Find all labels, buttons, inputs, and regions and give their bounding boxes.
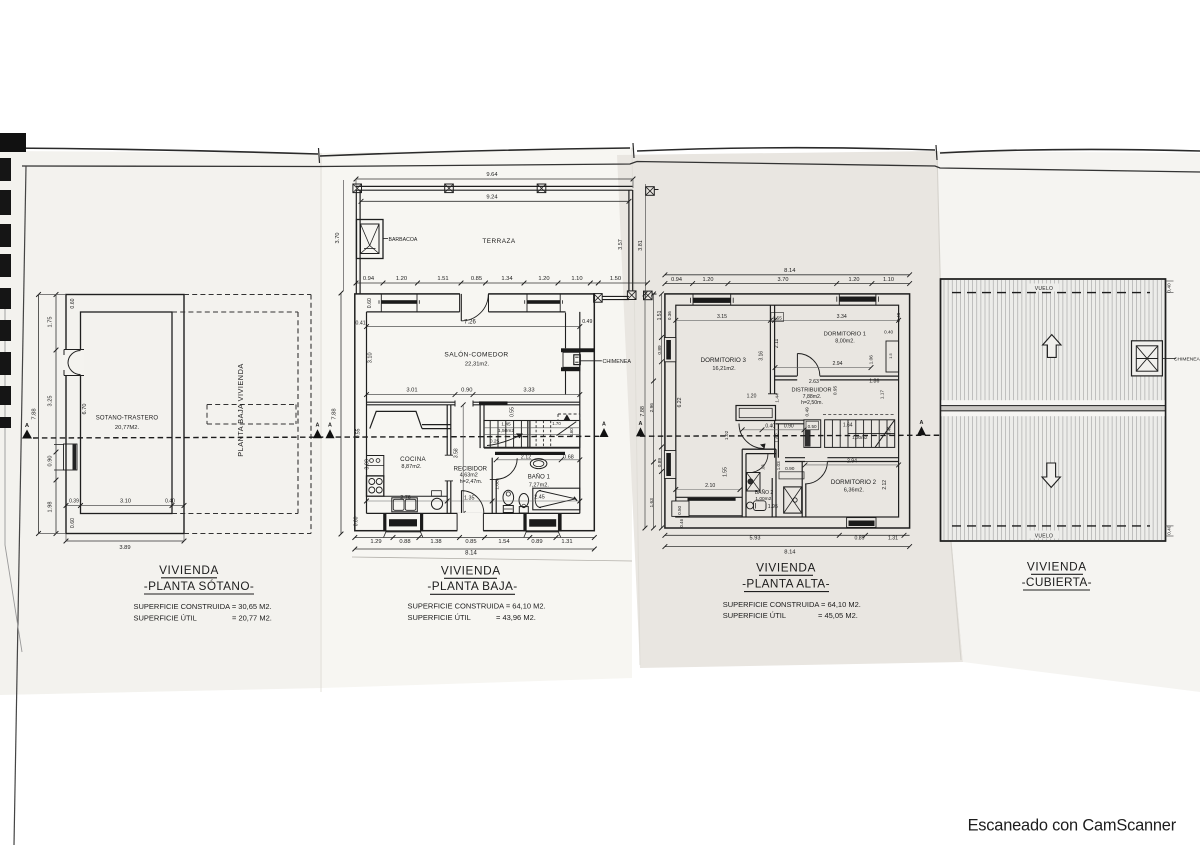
svg-text:0,55: 0,55 bbox=[773, 315, 782, 320]
svg-text:2.12: 2.12 bbox=[521, 454, 532, 460]
svg-text:1.10: 1.10 bbox=[883, 277, 894, 283]
svg-text:= 20,77 M2.: = 20,77 M2. bbox=[232, 614, 272, 623]
svg-text:1.45: 1.45 bbox=[501, 421, 511, 427]
svg-text:DORMITORIO 3: DORMITORIO 3 bbox=[701, 357, 747, 364]
svg-text:0.89: 0.89 bbox=[531, 539, 542, 545]
svg-text:0.50: 0.50 bbox=[677, 505, 682, 514]
svg-text:0.25: 0.25 bbox=[490, 439, 500, 445]
svg-text:SUPERFICIE CONSTRUIDA = 64,10: SUPERFICIE CONSTRUIDA = 64,10 M2. bbox=[408, 602, 546, 611]
svg-text:2.94: 2.94 bbox=[847, 458, 857, 464]
svg-text:0.85: 0.85 bbox=[471, 276, 482, 282]
svg-text:0.88: 0.88 bbox=[399, 539, 410, 545]
svg-text:8.14: 8.14 bbox=[784, 268, 796, 274]
svg-text:2.10: 2.10 bbox=[705, 483, 715, 489]
svg-text:A: A bbox=[602, 422, 606, 428]
svg-text:-PLANTA ALTA-: -PLANTA ALTA- bbox=[742, 577, 830, 591]
svg-text:0.40: 0.40 bbox=[884, 329, 893, 334]
svg-text:2.94: 2.94 bbox=[832, 361, 842, 367]
svg-text:TERRAZA: TERRAZA bbox=[482, 238, 516, 245]
svg-text:1.31: 1.31 bbox=[561, 539, 572, 545]
svg-text:1.51: 1.51 bbox=[437, 276, 448, 282]
svg-text:0.89: 0.89 bbox=[657, 458, 663, 468]
svg-text:A: A bbox=[920, 420, 924, 426]
svg-text:0.89: 0.89 bbox=[854, 535, 864, 541]
svg-text:6,36m2.: 6,36m2. bbox=[844, 488, 865, 494]
svg-text:-CUBIERTA-: -CUBIERTA- bbox=[1022, 575, 1092, 589]
svg-text:= 43,96 M2.: = 43,96 M2. bbox=[496, 613, 536, 622]
svg-text:0.41: 0.41 bbox=[356, 321, 366, 327]
svg-text:3.10: 3.10 bbox=[120, 499, 131, 505]
svg-text:SUPERFICIE ÚTIL: SUPERFICIE ÚTIL bbox=[723, 611, 786, 620]
svg-text:3.81: 3.81 bbox=[638, 240, 644, 251]
svg-text:0.60: 0.60 bbox=[367, 298, 373, 308]
svg-text:0.89: 0.89 bbox=[657, 345, 663, 355]
svg-text:SALÓN-COMEDOR: SALÓN-COMEDOR bbox=[444, 349, 508, 358]
svg-text:0.55: 0.55 bbox=[356, 428, 362, 438]
svg-text:0.60: 0.60 bbox=[354, 516, 360, 526]
svg-text:0.60: 0.60 bbox=[70, 518, 76, 528]
svg-text:0.55: 0.55 bbox=[510, 407, 516, 417]
svg-text:4,63m2: 4,63m2 bbox=[460, 472, 478, 478]
svg-text:2.45: 2.45 bbox=[534, 495, 545, 501]
svg-text:0.40: 0.40 bbox=[165, 499, 175, 505]
svg-text:1.06: 1.06 bbox=[869, 355, 875, 365]
svg-text:0.46: 0.46 bbox=[887, 426, 892, 435]
svg-text:0.68: 0.68 bbox=[563, 454, 574, 460]
svg-text:5.93: 5.93 bbox=[750, 535, 761, 541]
svg-text:1.55: 1.55 bbox=[723, 467, 729, 477]
svg-text:8.14: 8.14 bbox=[784, 549, 796, 555]
svg-text:1.38: 1.38 bbox=[430, 539, 441, 545]
svg-text:Escaneado con CamScanner: Escaneado con CamScanner bbox=[968, 817, 1177, 835]
svg-text:3.89: 3.89 bbox=[119, 545, 130, 551]
svg-text:1.5: 1.5 bbox=[888, 352, 893, 358]
svg-text:1,50m2: 1,50m2 bbox=[498, 428, 514, 434]
svg-text:CHIMENEA: CHIMENEA bbox=[1174, 357, 1200, 363]
svg-text:1.95: 1.95 bbox=[768, 504, 778, 510]
svg-text:-PLANTA BAJA-: -PLANTA BAJA- bbox=[427, 579, 517, 593]
svg-text:9.64: 9.64 bbox=[486, 172, 498, 178]
svg-text:0.94: 0.94 bbox=[671, 277, 682, 283]
svg-text:1.03: 1.03 bbox=[776, 461, 781, 470]
svg-text:VIVIENDA: VIVIENDA bbox=[441, 564, 501, 578]
svg-text:A: A bbox=[639, 421, 643, 427]
svg-text:PLANTA BAJA VIVIENDA: PLANTA BAJA VIVIENDA bbox=[236, 363, 245, 456]
svg-text:VUELO: VUELO bbox=[1035, 533, 1053, 539]
svg-text:RECIBIDOR: RECIBIDOR bbox=[454, 466, 488, 472]
svg-text:0,40: 0,40 bbox=[1166, 283, 1172, 293]
svg-text:1.20: 1.20 bbox=[703, 277, 714, 283]
svg-text:3.57: 3.57 bbox=[618, 239, 624, 250]
svg-text:1.31: 1.31 bbox=[888, 535, 898, 541]
svg-text:6.70: 6.70 bbox=[82, 404, 88, 415]
svg-text:3.01: 3.01 bbox=[406, 387, 417, 393]
svg-text:A: A bbox=[328, 423, 332, 429]
svg-text:SUPERFICIE ÚTIL: SUPERFICIE ÚTIL bbox=[408, 613, 471, 622]
svg-text:BARBACOA: BARBACOA bbox=[389, 237, 418, 243]
svg-text:7,27m2.: 7,27m2. bbox=[529, 482, 550, 488]
svg-text:0.90: 0.90 bbox=[784, 423, 794, 429]
svg-text:0.90: 0.90 bbox=[785, 466, 795, 472]
svg-text:1.63: 1.63 bbox=[649, 498, 655, 508]
svg-text:1.62: 1.62 bbox=[774, 433, 780, 443]
svg-text:6.22: 6.22 bbox=[677, 397, 683, 407]
svg-text:DORMITORIO 1: DORMITORIO 1 bbox=[824, 331, 866, 337]
svg-text:7.88: 7.88 bbox=[332, 408, 338, 419]
svg-text:3.15: 3.15 bbox=[717, 314, 727, 320]
svg-text:2.63: 2.63 bbox=[809, 379, 819, 385]
svg-text:1.10: 1.10 bbox=[571, 276, 582, 282]
svg-text:7.88: 7.88 bbox=[640, 406, 646, 417]
svg-text:SUPERFICIE ÚTIL: SUPERFICIE ÚTIL bbox=[134, 614, 197, 623]
svg-text:SUPERFICIE CONSTRUIDA = 30,65: SUPERFICIE CONSTRUIDA = 30,65 M2. bbox=[134, 602, 272, 611]
svg-text:1.98: 1.98 bbox=[48, 502, 54, 513]
svg-text:0.90: 0.90 bbox=[461, 387, 472, 393]
svg-text:3.70: 3.70 bbox=[778, 277, 789, 283]
svg-text:VIVIENDA: VIVIENDA bbox=[159, 563, 219, 577]
svg-text:0.49: 0.49 bbox=[896, 312, 902, 322]
svg-text:VUELO: VUELO bbox=[1035, 286, 1053, 292]
svg-text:COCINA: COCINA bbox=[400, 456, 426, 463]
svg-text:1,00m2.: 1,00m2. bbox=[755, 496, 772, 502]
svg-text:3.58: 3.58 bbox=[454, 448, 460, 458]
svg-text:0.90: 0.90 bbox=[48, 456, 54, 467]
svg-text:1.20: 1.20 bbox=[849, 277, 860, 283]
svg-text:= 45,05 M2.: = 45,05 M2. bbox=[818, 611, 858, 620]
svg-text:1.34: 1.34 bbox=[501, 276, 513, 282]
svg-text:SUPERFICIE CONSTRUIDA = 64,10: SUPERFICIE CONSTRUIDA = 64,10 M2. bbox=[723, 600, 861, 609]
svg-text:0.94: 0.94 bbox=[363, 276, 375, 282]
svg-text:1.70: 1.70 bbox=[552, 421, 561, 426]
svg-text:1.54: 1.54 bbox=[498, 539, 510, 545]
svg-text:3.25: 3.25 bbox=[48, 396, 54, 407]
svg-text:9.24: 9.24 bbox=[486, 194, 498, 200]
svg-text:0.36: 0.36 bbox=[667, 311, 672, 320]
svg-text:7.88: 7.88 bbox=[32, 408, 38, 419]
svg-text:1.44: 1.44 bbox=[775, 393, 781, 403]
svg-text:BAÑO 2: BAÑO 2 bbox=[755, 489, 774, 496]
svg-text:0,40: 0,40 bbox=[1166, 525, 1172, 535]
svg-text:1.29: 1.29 bbox=[370, 539, 381, 545]
svg-text:3.10: 3.10 bbox=[367, 352, 373, 363]
svg-text:1.17: 1.17 bbox=[880, 390, 886, 400]
svg-text:0.95: 0.95 bbox=[833, 386, 839, 396]
svg-text:20,77M2.: 20,77M2. bbox=[115, 425, 140, 431]
svg-text:DORMITORIO 2: DORMITORIO 2 bbox=[831, 479, 877, 486]
svg-text:7.26: 7.26 bbox=[464, 320, 476, 326]
svg-text:8,87m2.: 8,87m2. bbox=[401, 464, 422, 470]
svg-text:0.46: 0.46 bbox=[679, 518, 684, 527]
svg-text:3.34: 3.34 bbox=[837, 314, 847, 320]
svg-text:0.49: 0.49 bbox=[582, 319, 592, 325]
svg-text:1.75: 1.75 bbox=[48, 317, 54, 328]
svg-text:0.50: 0.50 bbox=[808, 424, 817, 429]
svg-text:1.64: 1.64 bbox=[843, 423, 853, 429]
svg-text:2.96: 2.96 bbox=[649, 403, 655, 413]
svg-text:A: A bbox=[316, 423, 320, 429]
svg-text:1.20: 1.20 bbox=[747, 393, 757, 399]
svg-text:1.50: 1.50 bbox=[610, 276, 621, 282]
svg-text:0.49: 0.49 bbox=[804, 407, 810, 417]
svg-text:16,21m2.: 16,21m2. bbox=[712, 366, 736, 372]
svg-text:1.20: 1.20 bbox=[396, 276, 407, 282]
svg-text:1.20: 1.20 bbox=[538, 276, 549, 282]
svg-text:0.40: 0.40 bbox=[765, 423, 775, 429]
svg-text:0.39: 0.39 bbox=[69, 499, 79, 505]
svg-text:VIVIENDA: VIVIENDA bbox=[756, 561, 816, 575]
svg-text:CHIMENEA: CHIMENEA bbox=[603, 359, 632, 365]
svg-text:8.14: 8.14 bbox=[465, 551, 477, 557]
svg-text:0.85: 0.85 bbox=[465, 539, 476, 545]
svg-text:0.60: 0.60 bbox=[70, 298, 76, 308]
svg-text:VIVIENDA: VIVIENDA bbox=[1027, 560, 1087, 574]
svg-text:1.86: 1.86 bbox=[869, 378, 879, 384]
svg-text:2.12: 2.12 bbox=[882, 480, 888, 490]
svg-text:3.16: 3.16 bbox=[759, 351, 765, 361]
svg-text:3.33: 3.33 bbox=[523, 387, 534, 393]
svg-text:1.08: 1.08 bbox=[495, 480, 501, 490]
svg-text:2.11: 2.11 bbox=[774, 339, 780, 349]
svg-text:8,00m2.: 8,00m2. bbox=[835, 339, 854, 345]
svg-text:h=2,50m.: h=2,50m. bbox=[801, 400, 823, 406]
svg-text:1.60: 1.60 bbox=[569, 428, 574, 437]
svg-text:-PLANTA SÓTANO-: -PLANTA SÓTANO- bbox=[144, 579, 254, 593]
svg-text:1.51: 1.51 bbox=[657, 310, 663, 320]
svg-text:DISTRIBUIDOR: DISTRIBUIDOR bbox=[791, 388, 831, 394]
svg-text:3.70: 3.70 bbox=[335, 233, 341, 244]
svg-text:22,31m2.: 22,31m2. bbox=[465, 362, 490, 368]
svg-text:1.35: 1.35 bbox=[464, 496, 475, 502]
svg-text:BAÑO 1: BAÑO 1 bbox=[528, 473, 551, 480]
svg-text:3.03: 3.03 bbox=[365, 459, 371, 470]
svg-text:SOTANO-TRASTERO: SOTANO-TRASTERO bbox=[96, 416, 159, 422]
svg-text:.03: .03 bbox=[761, 464, 766, 470]
